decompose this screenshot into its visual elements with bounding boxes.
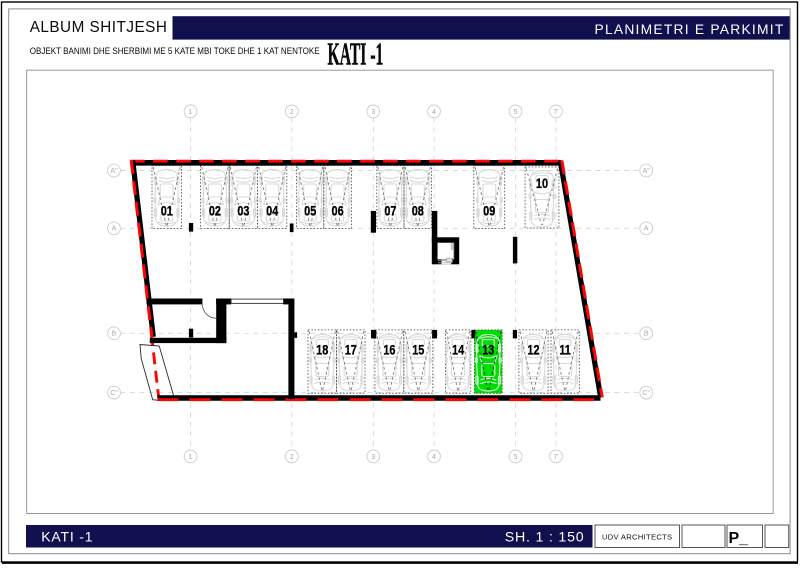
svg-text:7': 7' xyxy=(553,454,558,461)
svg-text:5: 5 xyxy=(514,454,518,461)
svg-text:18: 18 xyxy=(316,342,328,358)
svg-text:02: 02 xyxy=(209,203,221,219)
svg-text:P_: P_ xyxy=(729,530,750,547)
svg-text:13: 13 xyxy=(482,342,494,358)
svg-text:06: 06 xyxy=(332,203,344,219)
svg-text:1: 1 xyxy=(189,454,193,461)
svg-text:14: 14 xyxy=(452,342,464,358)
svg-text:2: 2 xyxy=(290,109,294,116)
svg-text:10: 10 xyxy=(536,176,548,192)
svg-text:04: 04 xyxy=(266,203,278,219)
svg-text:KATI -1: KATI -1 xyxy=(328,38,384,72)
svg-text:B: B xyxy=(644,331,649,338)
svg-text:4: 4 xyxy=(432,109,436,116)
svg-text:15: 15 xyxy=(412,342,424,358)
svg-text:UDV ARCHITECTS: UDV ARCHITECTS xyxy=(602,532,672,541)
svg-text:3: 3 xyxy=(371,109,375,116)
svg-text:A": A" xyxy=(110,168,118,175)
svg-text:7': 7' xyxy=(553,109,558,116)
svg-text:05: 05 xyxy=(304,203,316,219)
svg-text:A: A xyxy=(112,226,117,233)
svg-text:C": C" xyxy=(110,390,118,397)
svg-text:17: 17 xyxy=(345,342,357,358)
svg-text:3: 3 xyxy=(371,454,375,461)
svg-text:08: 08 xyxy=(412,203,424,219)
svg-text:2: 2 xyxy=(290,454,294,461)
svg-text:OBJEKT BANIMI DHE SHERBIMI ME: OBJEKT BANIMI DHE SHERBIMI ME 5 KATE MBI… xyxy=(30,46,320,56)
svg-text:ALBUM SHITJESH: ALBUM SHITJESH xyxy=(30,19,168,36)
svg-text:01: 01 xyxy=(161,203,173,219)
svg-text:B: B xyxy=(112,331,117,338)
svg-text:03: 03 xyxy=(237,203,249,219)
svg-text:1: 1 xyxy=(189,109,193,116)
svg-text:16: 16 xyxy=(383,342,395,358)
svg-text:12: 12 xyxy=(527,342,539,358)
svg-text:C": C" xyxy=(642,390,650,397)
svg-text:A": A" xyxy=(643,168,651,175)
svg-text:09: 09 xyxy=(483,203,495,219)
svg-text:07: 07 xyxy=(384,203,396,219)
svg-text:5: 5 xyxy=(514,109,518,116)
svg-text:PLANIMETRI E PARKIMIT: PLANIMETRI E PARKIMIT xyxy=(595,22,785,37)
svg-text:SH. 1 : 150: SH. 1 : 150 xyxy=(505,530,585,546)
svg-text:11: 11 xyxy=(559,342,571,358)
svg-text:4: 4 xyxy=(432,454,436,461)
svg-text:A: A xyxy=(644,226,649,233)
svg-text:KATI -1: KATI -1 xyxy=(41,528,93,544)
